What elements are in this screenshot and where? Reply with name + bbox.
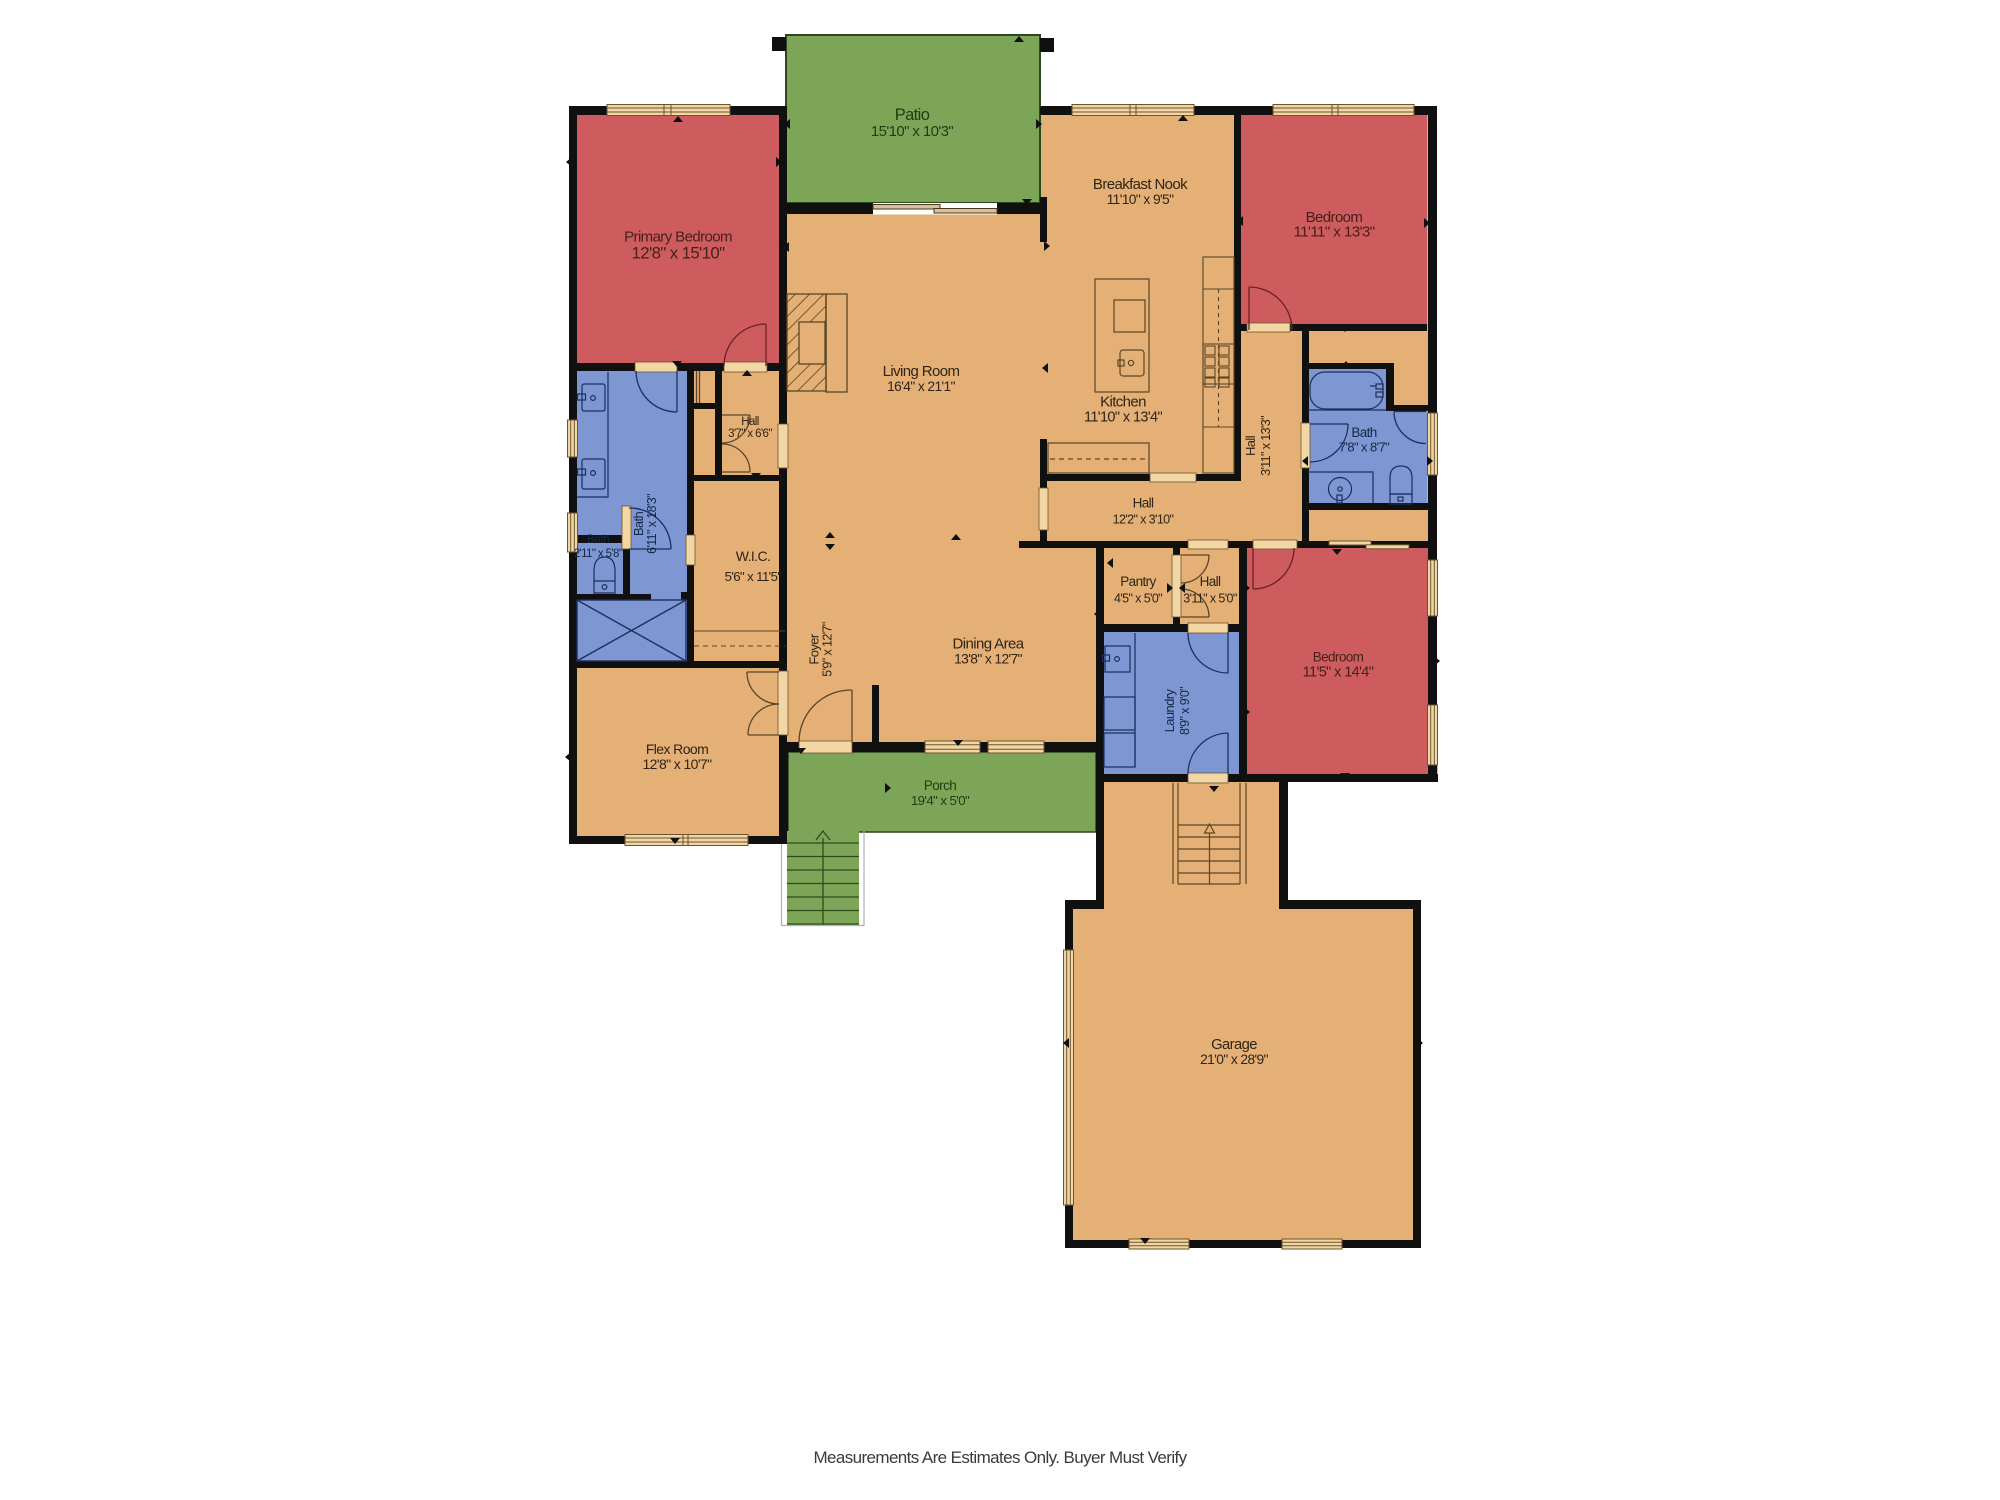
svg-text:Bath: Bath [631, 511, 646, 536]
svg-text:5'9" x 12'7": 5'9" x 12'7" [821, 622, 835, 677]
svg-text:Foyer: Foyer [807, 633, 822, 665]
svg-text:16'4" x 21'1": 16'4" x 21'1" [887, 379, 956, 394]
svg-text:Dining Area: Dining Area [953, 636, 1025, 653]
svg-text:7'8" x 8'7": 7'8" x 8'7" [1339, 440, 1390, 455]
svg-text:12'2" x 3'10": 12'2" x 3'10" [1113, 513, 1174, 527]
svg-text:Porch: Porch [924, 778, 956, 793]
svg-text:8'9" x 9'0": 8'9" x 9'0" [1178, 687, 1192, 735]
svg-text:Bath: Bath [587, 532, 609, 546]
svg-text:Bedroom: Bedroom [1313, 650, 1364, 665]
svg-text:Measurements Are Estimates Onl: Measurements Are Estimates Only. Buyer M… [813, 1448, 1187, 1467]
svg-text:12'8" x 15'10": 12'8" x 15'10" [632, 243, 726, 262]
svg-text:3'11" x 5'0": 3'11" x 5'0" [1183, 592, 1237, 606]
svg-text:12'8" x 10'7": 12'8" x 10'7" [643, 756, 713, 772]
svg-text:19'4" x 5'0": 19'4" x 5'0" [911, 793, 970, 808]
svg-text:Garage: Garage [1211, 1037, 1257, 1053]
svg-text:11'5" x 14'4": 11'5" x 14'4" [1303, 665, 1374, 681]
svg-text:Bath: Bath [1351, 425, 1376, 440]
svg-text:15'10" x 10'3": 15'10" x 10'3" [871, 123, 953, 140]
svg-text:3'11" x 13'3": 3'11" x 13'3" [1259, 416, 1273, 476]
svg-text:Kitchen: Kitchen [1100, 394, 1146, 411]
svg-text:2'11" x 5'8": 2'11" x 5'8" [574, 548, 623, 560]
svg-text:Patio: Patio [895, 106, 930, 124]
svg-text:Hall: Hall [1200, 574, 1221, 589]
svg-text:11'10" x 9'5": 11'10" x 9'5" [1107, 192, 1175, 207]
svg-text:Pantry: Pantry [1120, 574, 1156, 589]
svg-text:13'8" x 12'7": 13'8" x 12'7" [954, 652, 1023, 667]
svg-text:6'11" x 18'3": 6'11" x 18'3" [645, 494, 659, 554]
svg-text:Hall: Hall [1243, 435, 1258, 456]
svg-text:Hall: Hall [741, 416, 758, 428]
svg-text:Flex Room: Flex Room [646, 741, 708, 757]
svg-text:Laundry: Laundry [1162, 689, 1177, 733]
svg-text:Hall: Hall [1133, 496, 1154, 511]
svg-text:11'11" x 13'3": 11'11" x 13'3" [1293, 224, 1374, 241]
svg-text:Living Room: Living Room [883, 363, 960, 380]
svg-text:11'10" x 13'4": 11'10" x 13'4" [1084, 410, 1163, 426]
svg-text:21'0" x 28'9": 21'0" x 28'9" [1200, 1052, 1269, 1067]
svg-text:Breakfast Nook: Breakfast Nook [1093, 176, 1188, 193]
svg-text:W.I.C.: W.I.C. [736, 548, 771, 564]
svg-text:3'7" x 6'6": 3'7" x 6'6" [728, 428, 772, 440]
svg-text:4'5" x 5'0": 4'5" x 5'0" [1114, 592, 1162, 606]
svg-text:5'6" x 11'5": 5'6" x 11'5" [725, 569, 783, 584]
